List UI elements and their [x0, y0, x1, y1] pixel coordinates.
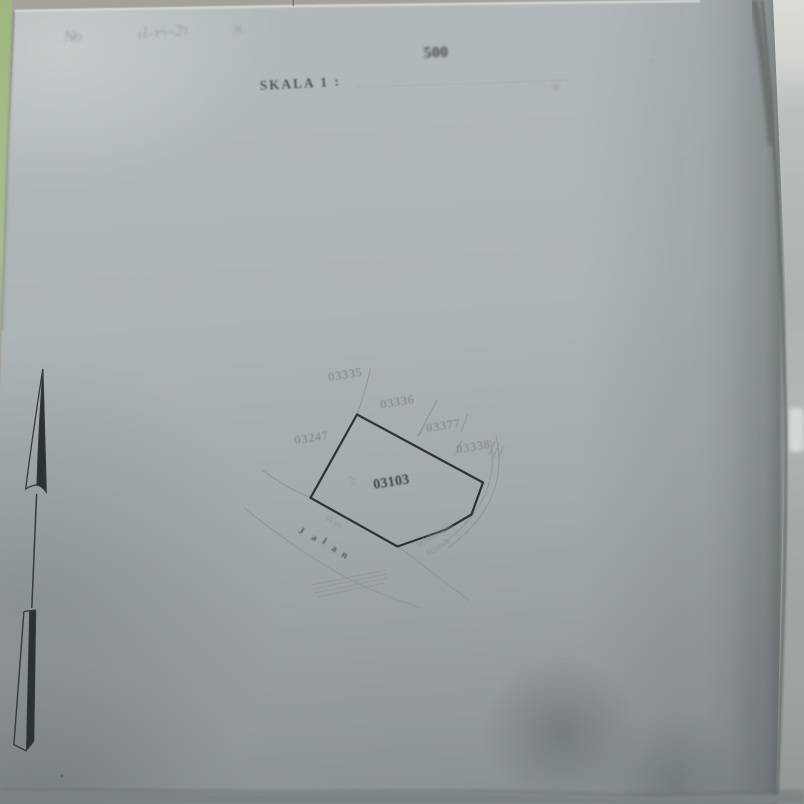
- svg-text:l: l: [321, 537, 329, 547]
- svg-text:n: n: [340, 550, 350, 562]
- svg-text:SKALA 1 :: SKALA 1 :: [259, 74, 341, 93]
- svg-text:϶ι: ϶ι: [231, 19, 243, 37]
- svg-text:a: a: [310, 533, 319, 544]
- svg-text:500: 500: [423, 44, 449, 62]
- svg-text:ıƖ-ɩ̵ϟ-2ı: ıƖ-ɩ̵ϟ-2ı: [137, 22, 190, 43]
- svg-text:03103: 03103: [372, 471, 411, 493]
- svg-text:03335: 03335: [327, 365, 363, 384]
- svg-text:03336: 03336: [379, 392, 415, 411]
- svg-text:a: a: [330, 544, 339, 555]
- svg-text:03338: 03338: [455, 437, 491, 456]
- svg-text:84 are: 84 are: [324, 515, 343, 530]
- svg-text:03247: 03247: [293, 428, 329, 447]
- svg-text:J: J: [297, 526, 306, 537]
- svg-text:N̸o: N̸o: [62, 27, 83, 46]
- svg-text:03377: 03377: [425, 416, 461, 435]
